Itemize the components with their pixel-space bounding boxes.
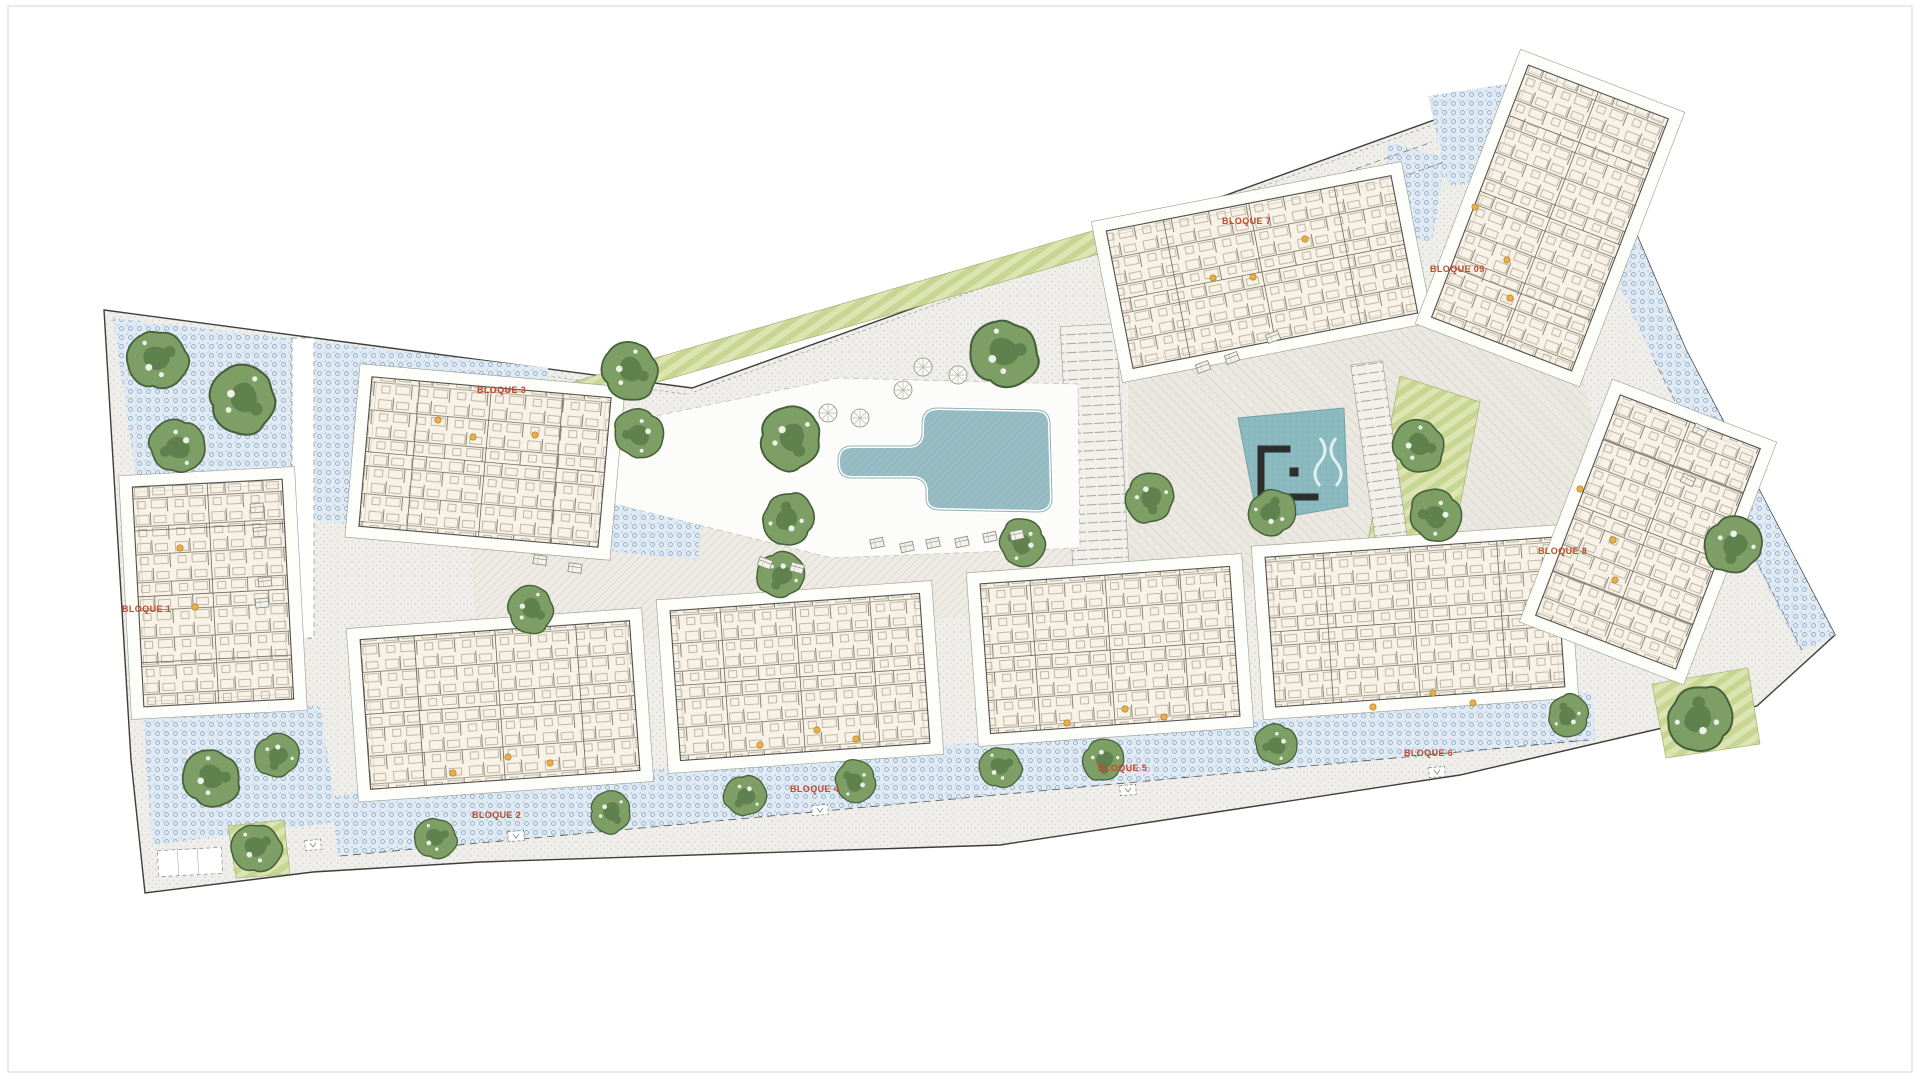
lounge-chair-icon (255, 598, 269, 608)
lounge-chair-icon (258, 577, 272, 587)
elevator-icon (508, 830, 525, 841)
site-plan-svg: BLOQUE 1 BLOQUE 2 BLOQUE 3 BLOQUE 4 BLOQ… (0, 0, 1920, 1080)
lounge-chair-icon (253, 527, 267, 537)
lounge-chair-icon (250, 503, 264, 513)
parasol-icon (851, 409, 869, 427)
block-8-label: BLOQUE 8 (1538, 546, 1587, 556)
block-4-building (656, 581, 943, 774)
elevator-icon (1429, 766, 1446, 777)
garden-southwest (142, 702, 338, 845)
block-1-label: BLOQUE 1 (122, 604, 171, 614)
block-4-label: BLOQUE 4 (790, 784, 839, 794)
drawing-sheet: BLOQUE 1 BLOQUE 2 BLOQUE 3 BLOQUE 4 BLOQ… (0, 0, 1920, 1080)
block-1-building (119, 467, 308, 720)
elevator-icon (1120, 784, 1137, 795)
parasol-icon (949, 366, 967, 384)
block-3-label: BLOQUE 3 (477, 385, 526, 395)
lounge-chair-icon (568, 563, 582, 574)
block-5-label: BLOQUE 5 (1098, 763, 1147, 773)
block-7-label: BLOQUE 7 (1222, 216, 1271, 226)
elevator-icon (305, 839, 322, 850)
parasol-icon (914, 358, 932, 376)
parasol-icon (894, 381, 912, 399)
elevator-icon (812, 804, 829, 815)
parking-ramp (157, 847, 222, 876)
block-2-label: BLOQUE 2 (472, 810, 521, 820)
block-5-building (966, 554, 1253, 747)
block-09-label: BLOQUE 09 (1430, 264, 1485, 274)
block-2-building (346, 608, 653, 802)
parasol-icon (819, 404, 837, 422)
block-6-label: BLOQUE 6 (1404, 748, 1453, 758)
lounge-chair-icon (533, 555, 547, 566)
